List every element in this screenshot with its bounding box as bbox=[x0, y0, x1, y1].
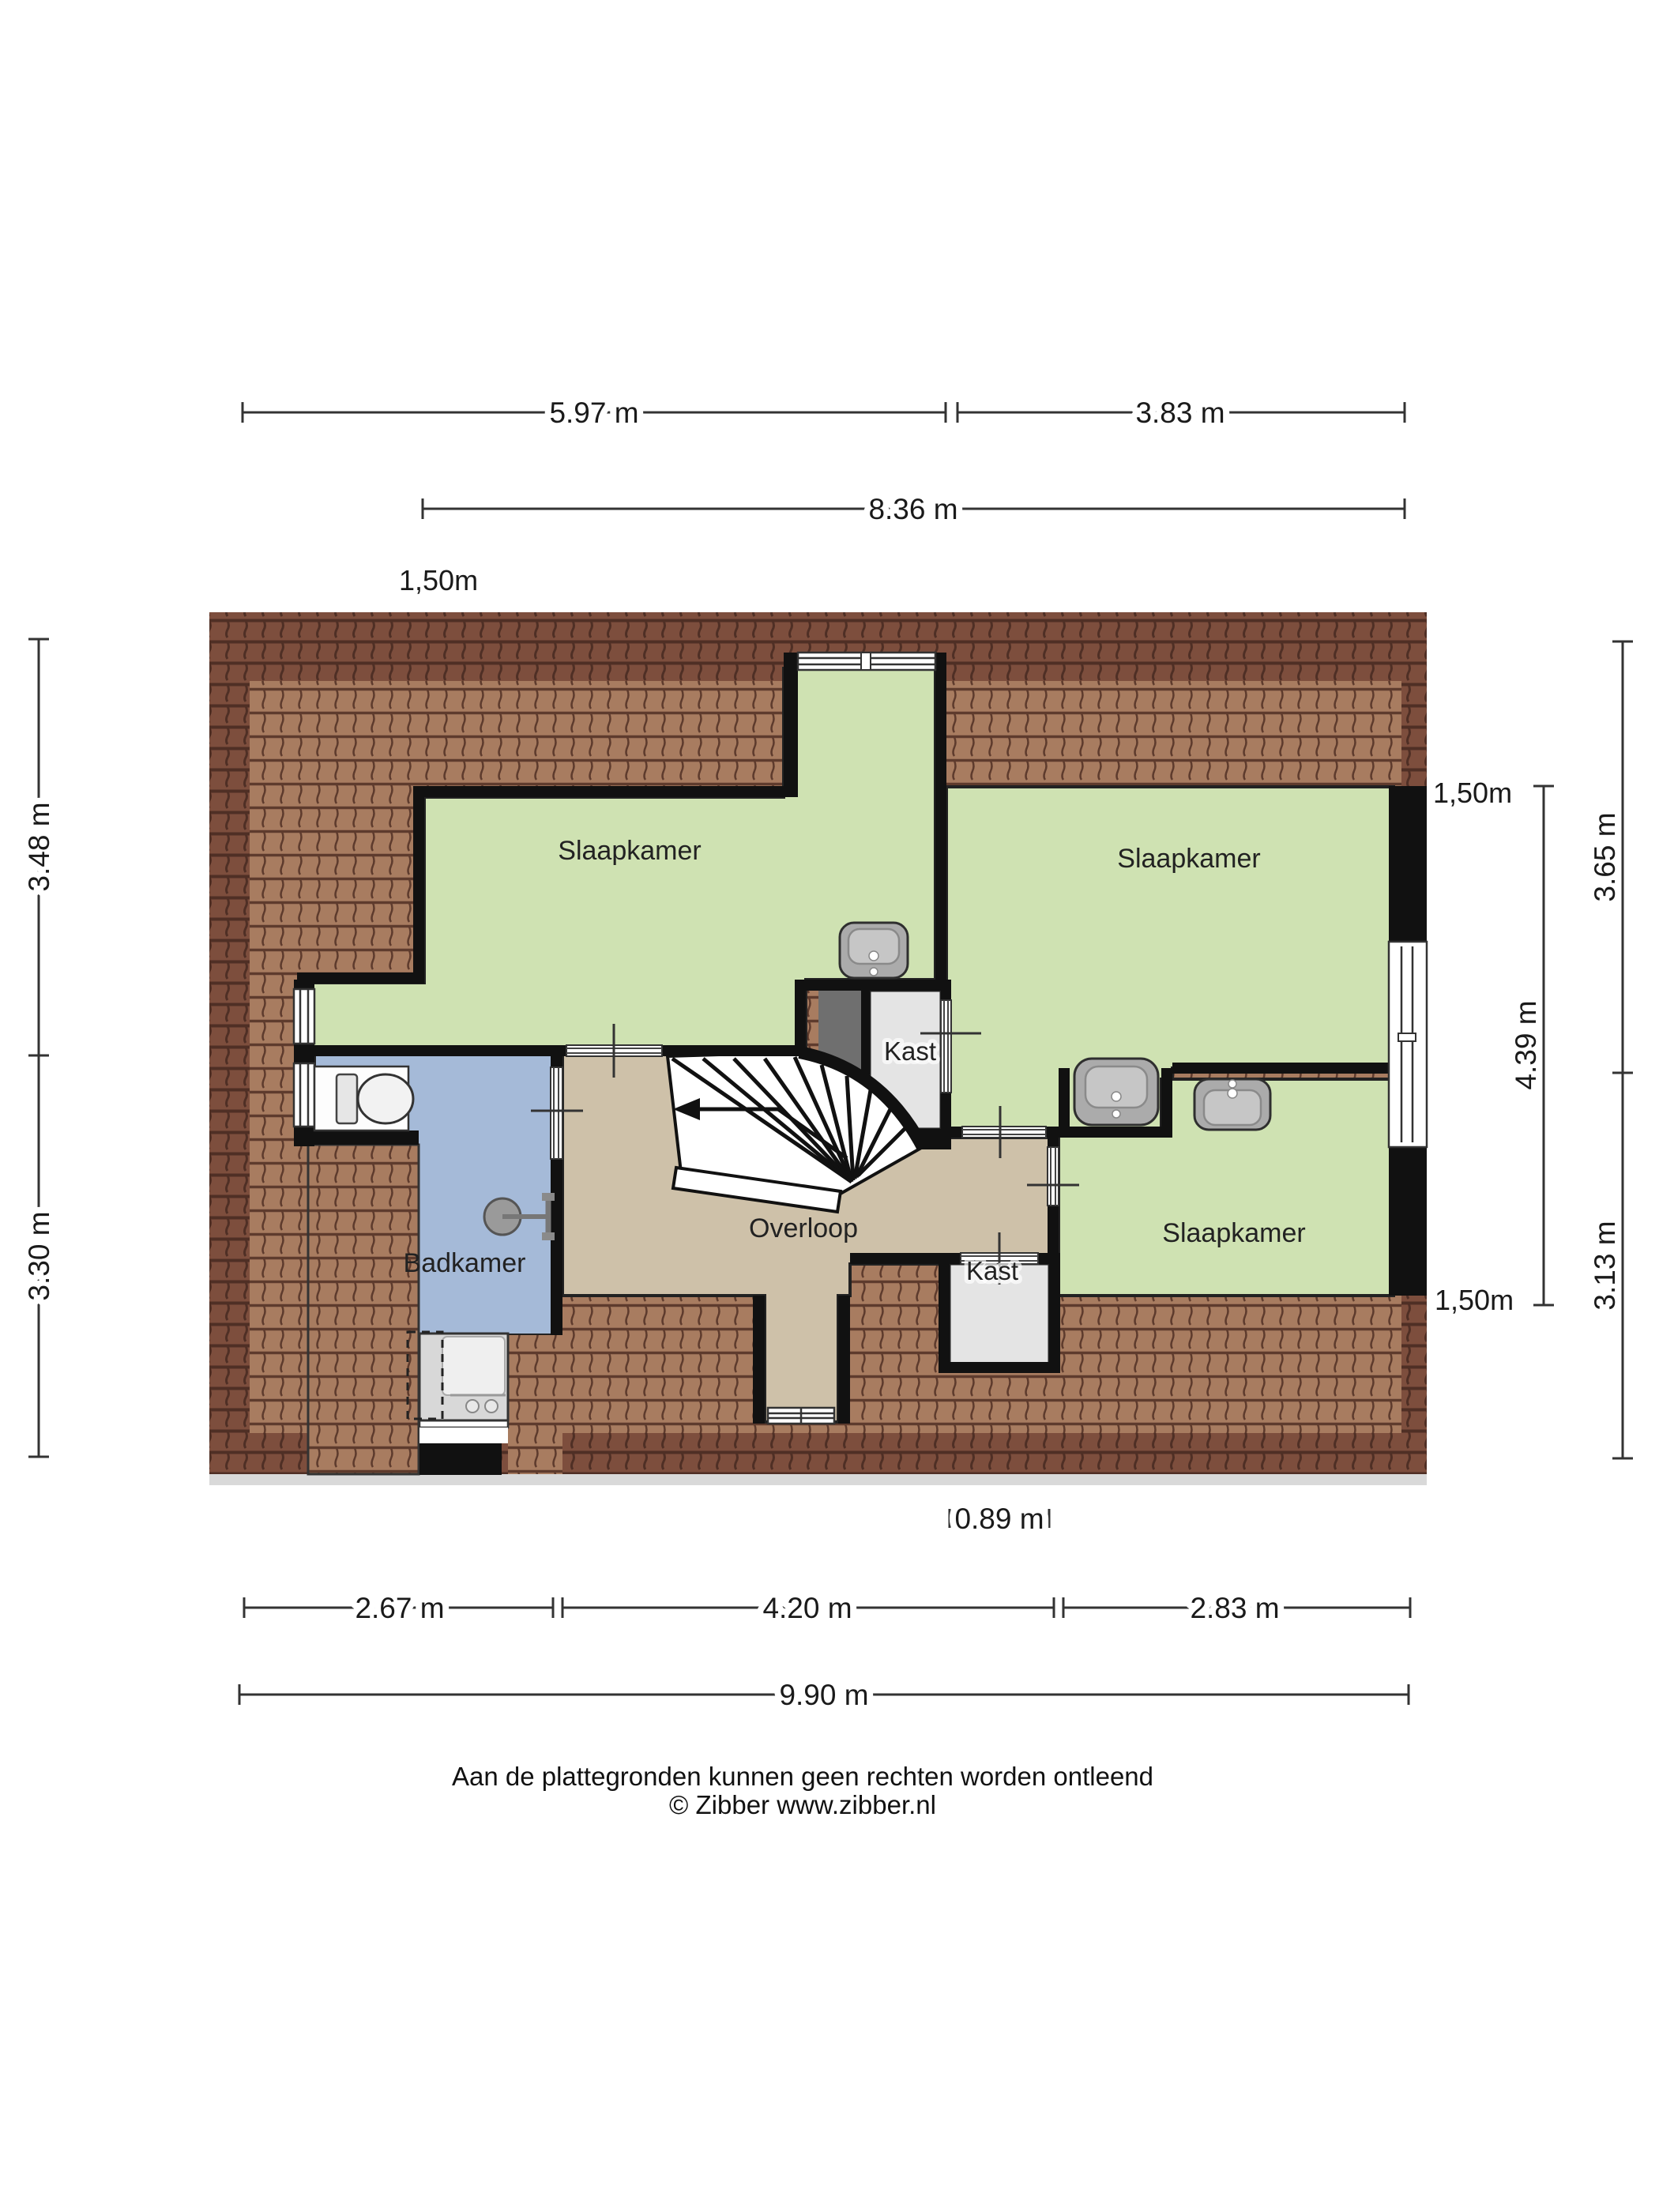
dim-left-height-bottom: 3.30 m bbox=[23, 1211, 55, 1300]
room-label-bedroom-bottom: Slaapkamer bbox=[1162, 1218, 1305, 1248]
dim-right-height-top: 3.65 m bbox=[1589, 812, 1621, 901]
dormer-window bbox=[798, 653, 935, 670]
room-label-bedroom-left: Slaapkamer bbox=[558, 836, 701, 866]
bathroom-window-left bbox=[294, 1063, 314, 1127]
bedroom-right-window bbox=[1389, 942, 1427, 1147]
sink-icon-bedroom-left bbox=[840, 923, 908, 978]
dim-left-height-top: 3.48 m bbox=[23, 802, 55, 891]
floorplan-page: Slaapkamer Slaapkamer Slaapkamer Badkame… bbox=[0, 0, 1659, 2212]
dim-right-height-bottom: 3.13 m bbox=[1589, 1221, 1621, 1310]
dim-bottom-width-right: 2.83 m bbox=[1190, 1592, 1279, 1624]
room-label-bathroom: Badkamer bbox=[404, 1248, 526, 1278]
sink-icon-bedroom-bottom bbox=[1194, 1079, 1270, 1130]
floorplan-canvas: Slaapkamer Slaapkamer Slaapkamer Badkame… bbox=[0, 0, 1659, 2212]
toilet-icon bbox=[314, 1066, 413, 1130]
roof-shadow bbox=[209, 1474, 1427, 1485]
footer-disclaimer: Aan de plattegronden kunnen geen rechten… bbox=[452, 1762, 1153, 1791]
dim-bottom-width-middle: 4.20 m bbox=[762, 1592, 852, 1624]
bedroom-left-window bbox=[294, 989, 314, 1044]
dim-knee-top-left: 1,50m bbox=[399, 564, 478, 596]
bathroom-roof-slope-right bbox=[508, 1335, 562, 1474]
dim-bottom-width-left: 2.67 m bbox=[355, 1592, 444, 1624]
dim-bottom-width-total: 9.90 m bbox=[779, 1679, 868, 1711]
dim-top-width-total: 8.36 m bbox=[868, 493, 957, 525]
dim-top-width-right: 3.83 m bbox=[1135, 397, 1224, 429]
bathtub-icon bbox=[408, 1332, 508, 1420]
room-label-closet-top: Kast bbox=[884, 1036, 936, 1066]
dim-top-width-left: 5.97 m bbox=[549, 397, 638, 429]
dim-right-height-middle: 4.39 m bbox=[1510, 1000, 1542, 1089]
room-label-landing: Overloop bbox=[749, 1213, 858, 1243]
dim-bottom-closet-width: 0.89 m bbox=[954, 1503, 1044, 1535]
room-label-bedroom-right: Slaapkamer bbox=[1117, 844, 1260, 874]
bathroom-window-bottom bbox=[419, 1420, 508, 1443]
corridor-window bbox=[768, 1408, 834, 1424]
sink-icon-bedroom-right bbox=[1074, 1059, 1158, 1125]
dim-right-knee-bottom: 1,50m bbox=[1435, 1284, 1514, 1316]
room-label-closet-bottom: Kast bbox=[966, 1256, 1018, 1285]
footer: Aan de plattegronden kunnen geen rechten… bbox=[452, 1762, 1153, 1819]
dim-right-knee-top: 1,50m bbox=[1433, 777, 1512, 809]
footer-credit: © Zibber www.zibber.nl bbox=[669, 1790, 936, 1819]
bathroom-roof-slope bbox=[308, 1145, 419, 1474]
